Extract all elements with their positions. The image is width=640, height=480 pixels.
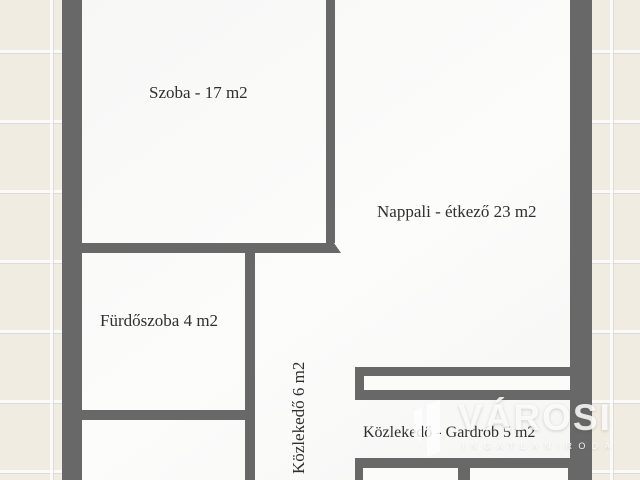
interior-wall-furdoszoba-right	[245, 253, 255, 480]
interior-wall-furdoszoba-bottom	[68, 410, 245, 420]
interior-wall-szoba-nappali	[326, 0, 335, 243]
wardrobe-section-right	[470, 468, 568, 480]
watermark: VÁROSI INGATLANIRODA	[412, 398, 640, 462]
room-label-szoba: Szoba - 17 m2	[149, 83, 248, 103]
wardrobe-section-left	[363, 468, 458, 480]
watermark-subtitle: INGATLANIRODA	[462, 442, 617, 451]
room-label-furdoszoba: Fürdőszoba 4 m2	[100, 311, 218, 331]
exterior-wall-left	[62, 0, 82, 480]
room-label-kozlekedo: Közlekedő 6 m2	[289, 356, 315, 480]
interior-wall-szoba-bottom	[62, 243, 341, 253]
wardrobe-unit-top-inner	[364, 376, 570, 390]
watermark-brand: VÁROSI	[458, 399, 612, 436]
floorplan-canvas: Szoba - 17 m2 Nappali - étkező 23 m2 Für…	[0, 0, 640, 480]
varosi-building-logo-icon	[412, 400, 446, 463]
room-label-nappali-etkezo: Nappali - étkező 23 m2	[377, 202, 537, 222]
